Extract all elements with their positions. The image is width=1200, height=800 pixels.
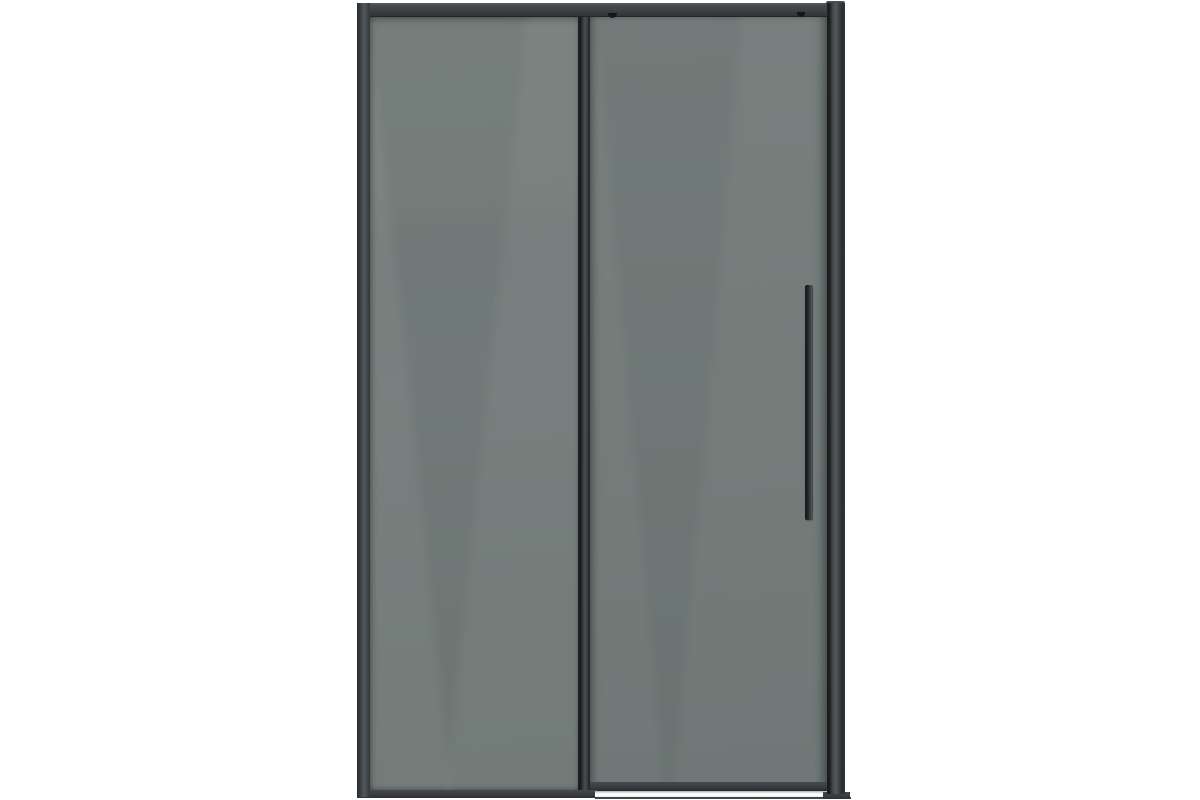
right-frame-post [827,3,845,794]
fixed-glass-panel [370,15,579,790]
top-rail [357,3,845,17]
door-stile [578,13,590,790]
door-handle [805,285,813,520]
bottom-rail [357,790,597,798]
left-frame-post [357,3,370,797]
product-photo [0,0,1200,800]
floor-guide-rail [595,797,851,799]
shower-door [357,0,851,800]
sliding-glass-panel [590,13,827,792]
